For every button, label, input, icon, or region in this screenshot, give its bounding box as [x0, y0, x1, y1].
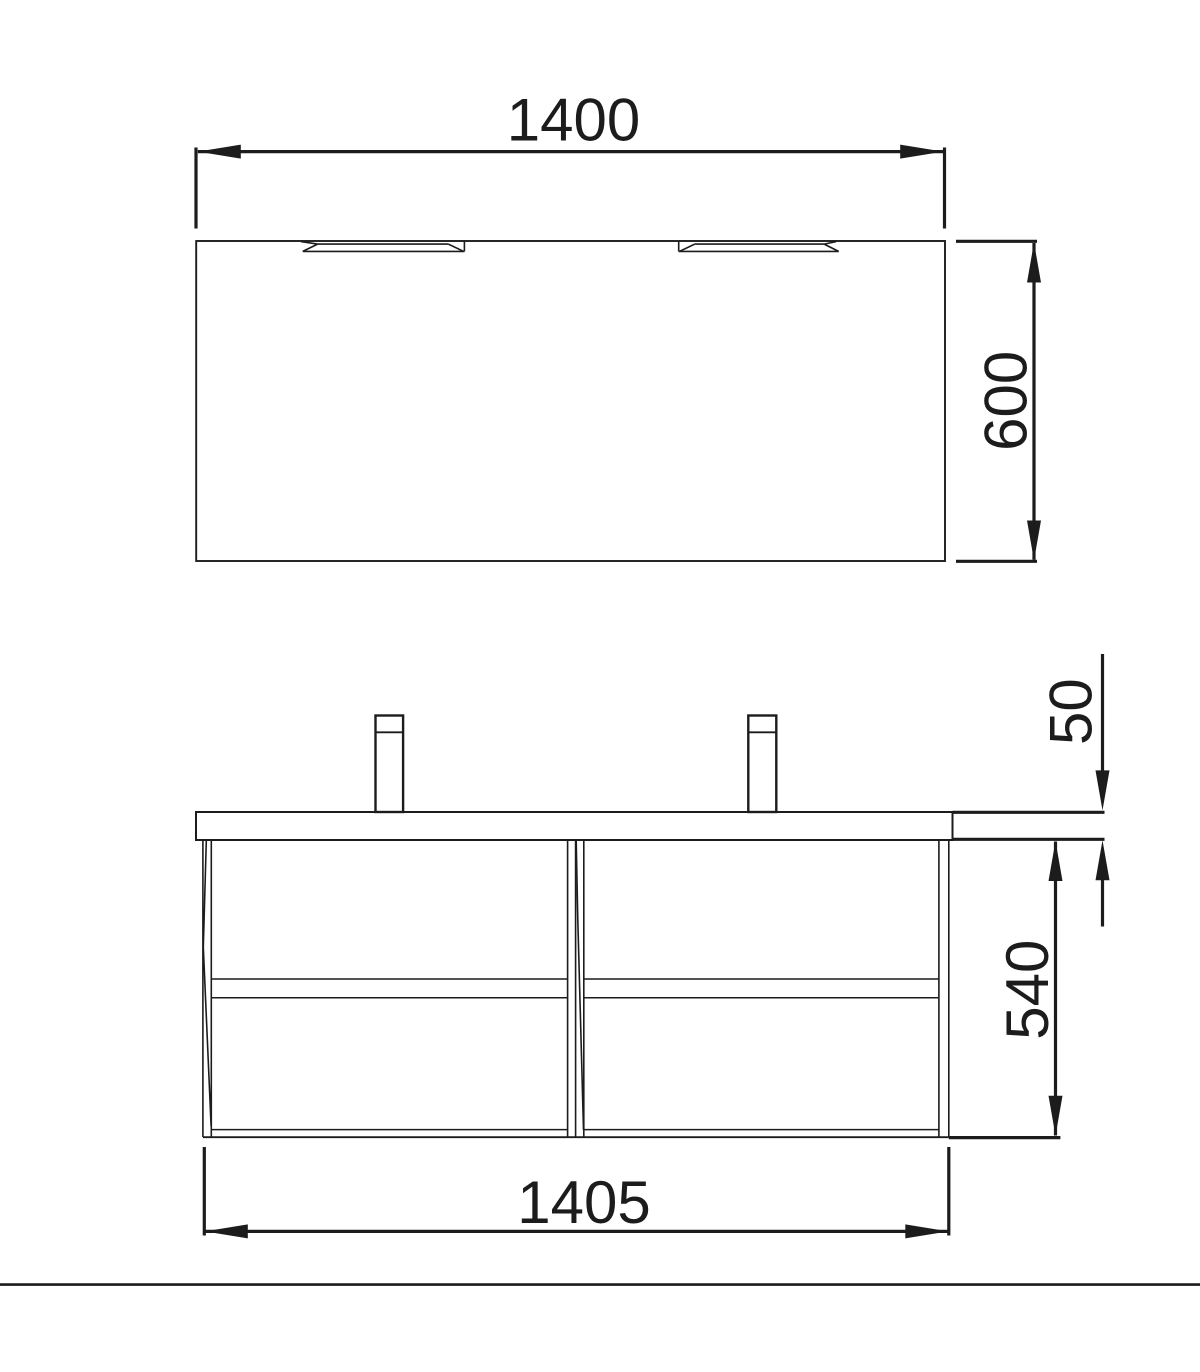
svg-text:1405: 1405	[517, 1169, 650, 1236]
svg-text:600: 600	[973, 351, 1040, 451]
svg-text:540: 540	[994, 940, 1061, 1040]
svg-text:1400: 1400	[507, 87, 640, 154]
svg-text:50: 50	[1037, 678, 1104, 745]
